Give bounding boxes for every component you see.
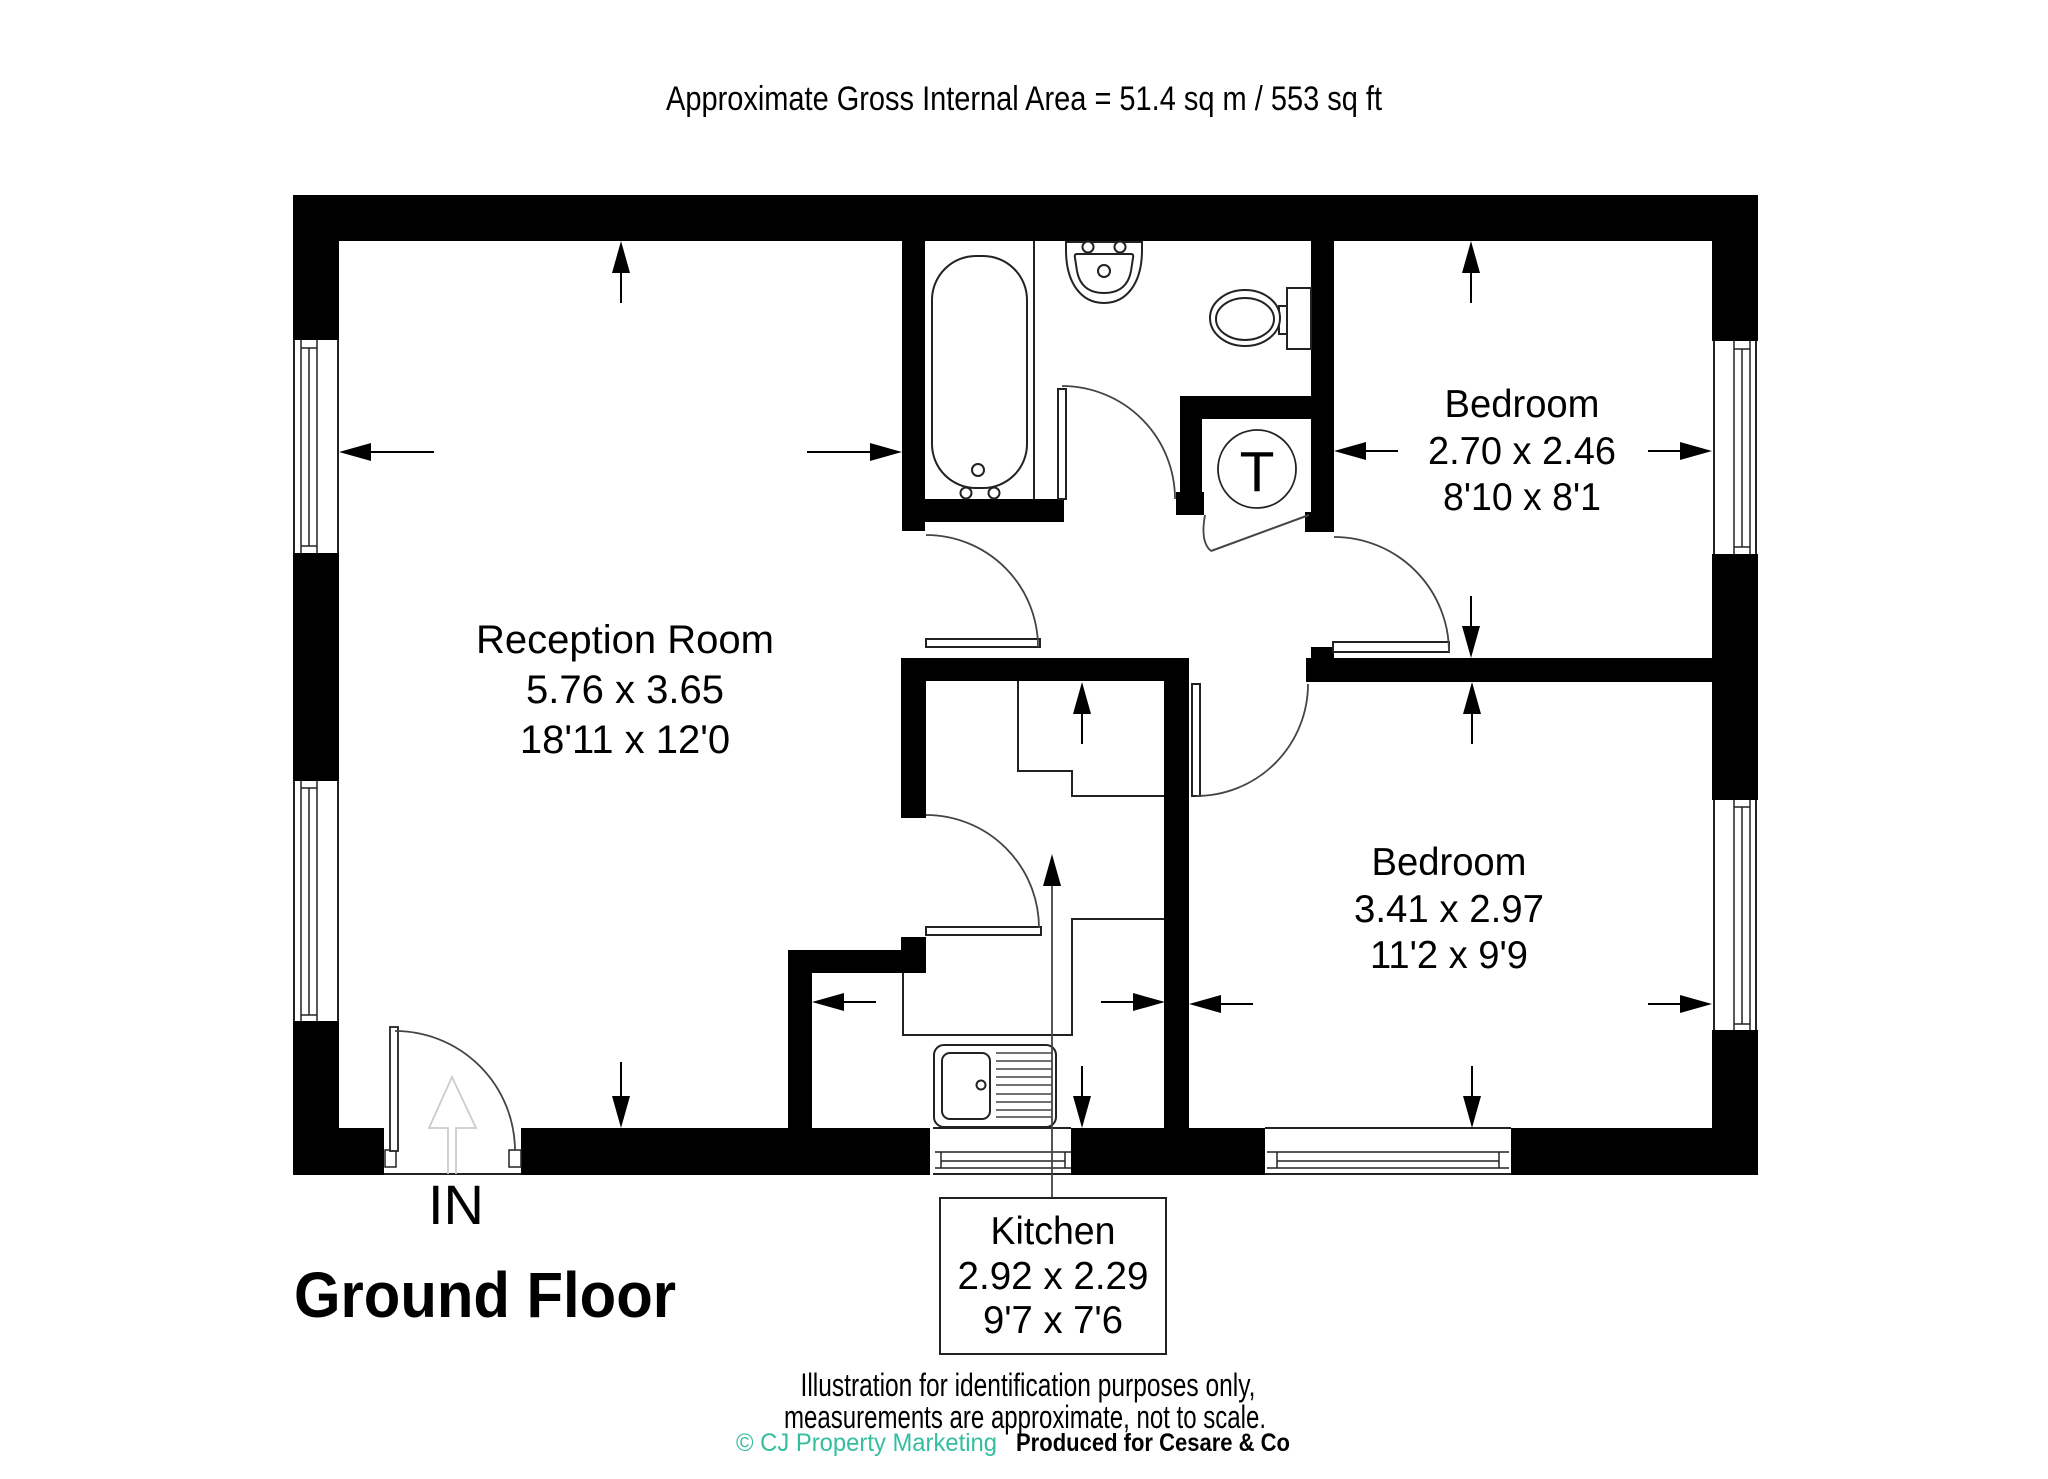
svg-text:11'2 x 9'9: 11'2 x 9'9 (1370, 934, 1528, 977)
svg-text:8'10 x 8'1: 8'10 x 8'1 (1443, 476, 1601, 519)
svg-text:Bedroom: Bedroom (1372, 841, 1527, 884)
svg-text:18'11 x 12'0: 18'11 x 12'0 (520, 718, 730, 762)
svg-text:Produced for Cesare & Co: Produced for Cesare & Co (1016, 1429, 1290, 1457)
svg-text:2.70 x 2.46: 2.70 x 2.46 (1428, 430, 1616, 473)
svg-text:5.76 x 3.65: 5.76 x 3.65 (526, 668, 724, 712)
svg-text:Bedroom: Bedroom (1445, 383, 1600, 426)
svg-text:Reception Room: Reception Room (476, 618, 774, 662)
svg-text:9'7 x 7'6: 9'7 x 7'6 (983, 1299, 1123, 1342)
svg-text:T: T (1240, 440, 1275, 504)
svg-text:IN: IN (428, 1173, 484, 1236)
svg-text:Kitchen: Kitchen (991, 1210, 1116, 1253)
svg-text:Approximate Gross Internal Are: Approximate Gross Internal Area = 51.4 s… (666, 80, 1382, 118)
svg-text:Ground Floor: Ground Floor (294, 1259, 676, 1331)
svg-text:© CJ Property Marketing: © CJ Property Marketing (736, 1429, 997, 1457)
svg-text:3.41 x 2.97: 3.41 x 2.97 (1354, 888, 1544, 931)
svg-text:2.92 x 2.29: 2.92 x 2.29 (958, 1255, 1149, 1298)
svg-text:Illustration for identificatio: Illustration for identification purposes… (801, 1367, 1256, 1403)
